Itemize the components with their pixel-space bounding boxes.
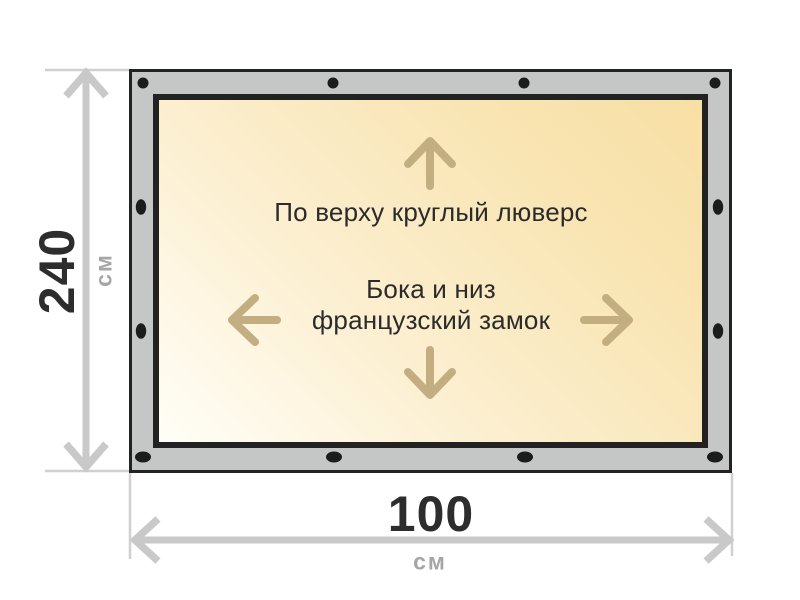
height-value: 240: [28, 228, 86, 314]
sides-bottom-note: Бока и низ французский замок: [160, 274, 702, 336]
down-arrow-icon: [408, 350, 452, 395]
grommet-dot: [328, 78, 339, 89]
up-arrow-icon: [408, 141, 452, 186]
grommet-dot: [710, 78, 721, 89]
grommet-dot: [326, 452, 342, 463]
grommet-dot: [136, 199, 146, 215]
grommet-dot: [135, 452, 151, 463]
width-value: 100: [388, 485, 474, 543]
top-edge-note: По верху круглый люверс: [160, 197, 702, 228]
grommet-dot: [519, 78, 530, 89]
grommet-dot: [136, 323, 146, 339]
grommet-dot: [707, 452, 723, 463]
grommet-col-right: [713, 199, 723, 339]
grommet-col-left: [136, 199, 146, 339]
grommet-row-bottom: [135, 452, 723, 463]
width-unit: см: [413, 549, 447, 576]
grommet-dot: [713, 323, 723, 339]
grommet-row-top: [138, 78, 721, 89]
grommet-dot: [713, 199, 723, 215]
grommet-dot: [138, 78, 149, 89]
banner-dimension-diagram: По верху круглый люверс Бока и низ франц…: [0, 0, 800, 600]
grommet-dot: [517, 452, 533, 463]
height-unit: см: [91, 253, 118, 287]
